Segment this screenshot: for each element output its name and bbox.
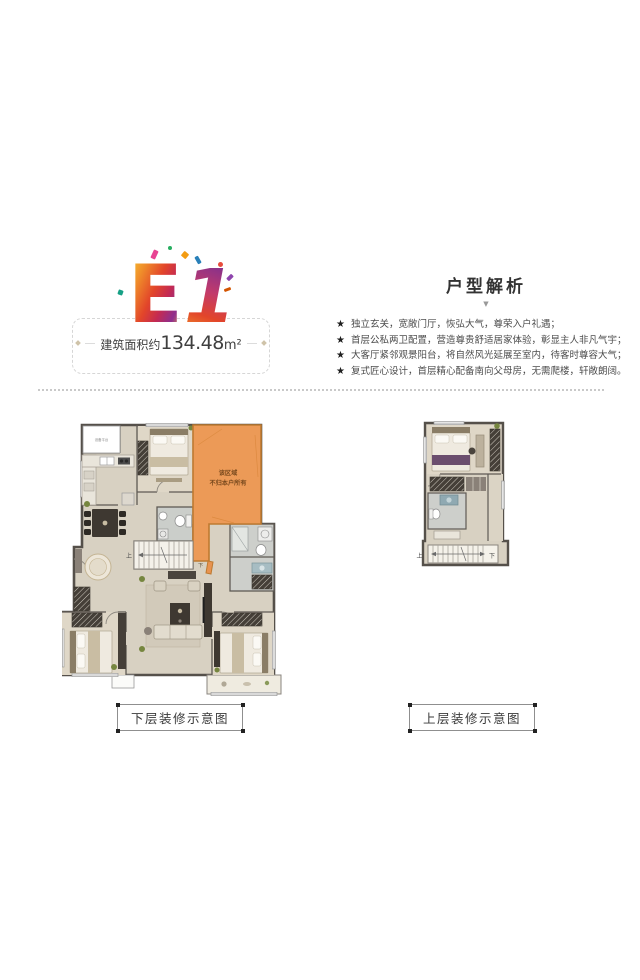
stairs: 上 — [126, 541, 193, 569]
unit-logo: E 1 — [122, 254, 252, 346]
bullet-text: 大客厅紧邻观景阳台，将自然风光延展至室内，待客时尊容大气； — [351, 348, 627, 364]
triangle-down-icon: ▼ — [336, 300, 636, 308]
diamond-icon — [261, 340, 267, 346]
analysis-section: 户型解析 ▼ ★ 独立玄关，宽敞门厅，恢弘大气，尊荣入户礼遇； ★ 首层公私两卫… — [336, 272, 636, 379]
stair-up-label: 上 — [126, 552, 132, 560]
rule-line — [85, 343, 95, 344]
caption-text: 上层装修示意图 — [423, 708, 521, 727]
restricted-text: 该区域 — [219, 469, 238, 477]
diamond-icon — [75, 340, 81, 346]
stair-down-label: 下 — [489, 553, 495, 560]
upper-floor-plan: 上 下 — [416, 419, 512, 567]
star-icon: ★ — [336, 333, 345, 349]
caption-corner — [241, 703, 245, 707]
logo-letter: E — [128, 254, 183, 336]
caption-corner — [408, 729, 412, 733]
bullet-text: 独立玄关，宽敞门厅，恢弘大气，尊荣入户礼遇； — [351, 317, 560, 333]
equipment-platform: 设备平台 — [83, 426, 120, 453]
bullet-item: ★ 独立玄关，宽敞门厅，恢弘大气，尊荣入户礼遇； — [336, 317, 636, 333]
bullet-item: ★ 大客厅紧邻观景阳台，将自然风光延展至室内，待客时尊容大气； — [336, 348, 636, 364]
star-icon: ★ — [336, 317, 345, 333]
bullet-list: ★ 独立玄关，宽敞门厅，恢弘大气，尊荣入户礼遇； ★ 首层公私两卫配置，营造尊贵… — [336, 317, 636, 379]
caption-corner — [408, 703, 412, 707]
stair-up-label: 上 — [417, 552, 423, 560]
star-icon: ★ — [336, 348, 345, 364]
upper-plan-caption: 上层装修示意图 — [409, 704, 535, 731]
bullet-text: 复式匠心设计，首层精心配备南向父母房，无需爬楼，轩敞朗阔。 — [351, 364, 627, 380]
caption-corner — [241, 729, 245, 733]
logo-digit: 1 — [184, 259, 236, 335]
bullet-item: ★ 首层公私两卫配置，营造尊贵舒适居家体验，彰显主人非凡气宇； — [336, 333, 636, 349]
bullet-text: 首层公私两卫配置，营造尊贵舒适居家体验，彰显主人非凡气宇； — [351, 333, 627, 349]
bullet-item: ★ 复式匠心设计，首层精心配备南向父母房，无需爬楼，轩敞朗阔。 — [336, 364, 636, 380]
platform-label: 设备平台 — [95, 437, 109, 442]
analysis-title: 户型解析 — [336, 272, 636, 297]
confetti-icon — [218, 262, 223, 267]
restricted-text: 不归本户所有 — [209, 479, 246, 487]
caption-corner — [116, 703, 120, 707]
bedroom-right — [214, 613, 268, 673]
star-icon: ★ — [336, 364, 345, 380]
lower-floor-plan: 设备平台 — [62, 417, 286, 701]
confetti-icon — [117, 289, 123, 295]
stairs: 上 下 — [417, 545, 499, 563]
caption-corner — [116, 729, 120, 733]
stair-down-label: 下 — [198, 562, 203, 569]
porch — [112, 675, 134, 688]
caption-text: 下层装修示意图 — [131, 708, 229, 727]
caption-corner — [533, 703, 537, 707]
caption-corner — [533, 729, 537, 733]
confetti-icon — [168, 246, 172, 250]
dotted-divider — [38, 389, 604, 391]
lower-plan-caption: 下层装修示意图 — [117, 704, 243, 731]
bedroom — [432, 423, 500, 471]
